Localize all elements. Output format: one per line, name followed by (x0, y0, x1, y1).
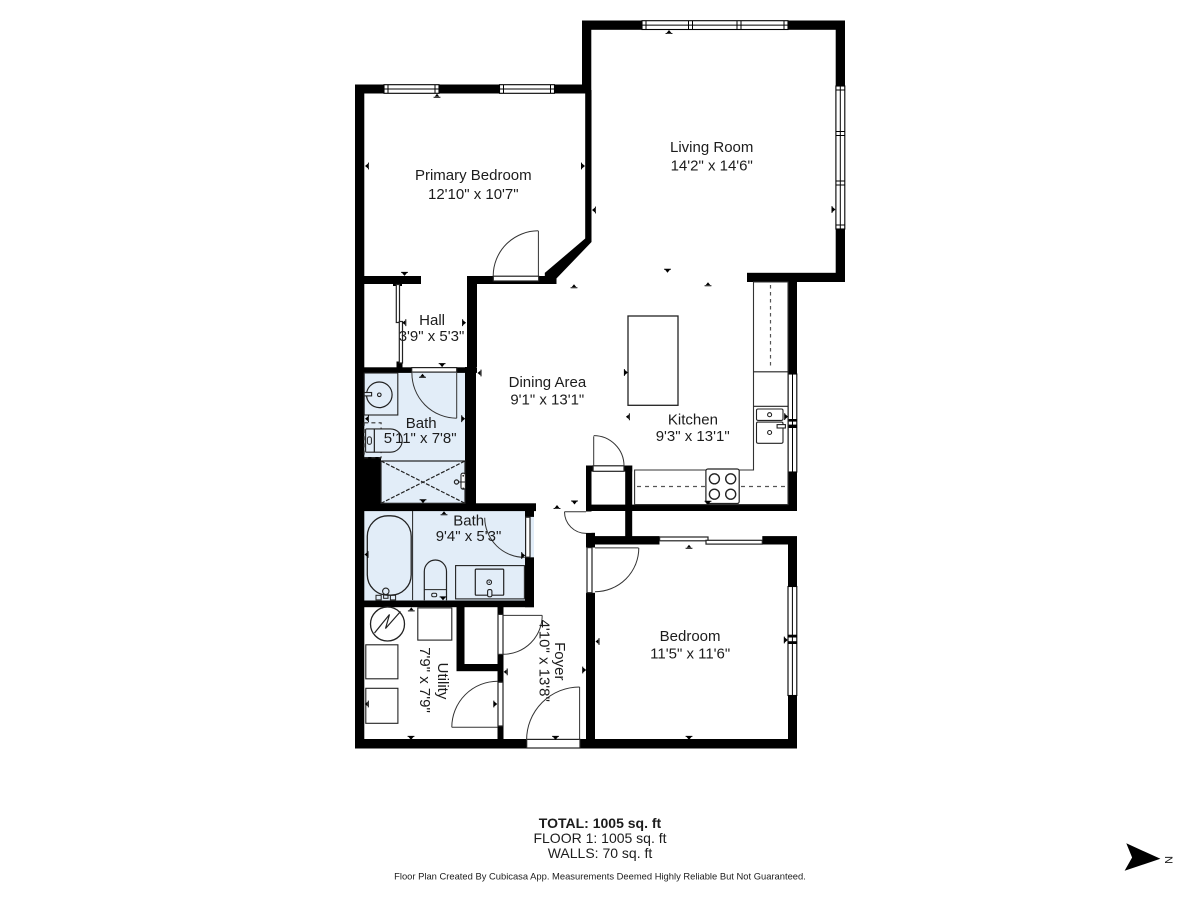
svg-text:N: N (1162, 856, 1174, 864)
svg-text:Kitchen: Kitchen (668, 412, 718, 429)
svg-text:WALLS: 70 sq. ft: WALLS: 70 sq. ft (548, 845, 653, 861)
svg-text:9'1" x 13'1": 9'1" x 13'1" (510, 391, 584, 408)
svg-text:4'10" x 13'8": 4'10" x 13'8" (536, 620, 553, 702)
svg-text:9'4" x 5'3": 9'4" x 5'3" (436, 528, 502, 545)
svg-text:Dining Area: Dining Area (509, 374, 587, 391)
svg-text:Hall: Hall (419, 312, 445, 329)
svg-text:Floor Plan Created By Cubicasa: Floor Plan Created By Cubicasa App. Meas… (394, 871, 806, 882)
svg-text:Utility: Utility (434, 663, 451, 700)
svg-text:5'11" x 7'8": 5'11" x 7'8" (384, 430, 457, 447)
svg-text:7'9" x 7'9": 7'9" x 7'9" (416, 647, 433, 713)
svg-text:14'2" x 14'6": 14'2" x 14'6" (671, 158, 753, 175)
svg-text:12'10" x 10'7": 12'10" x 10'7" (428, 186, 519, 203)
svg-text:FLOOR 1: 1005 sq. ft: FLOOR 1: 1005 sq. ft (533, 830, 666, 846)
svg-text:9'3" x 13'1": 9'3" x 13'1" (656, 428, 730, 445)
svg-text:Living Room: Living Room (670, 139, 753, 156)
svg-text:TOTAL: 1005 sq. ft: TOTAL: 1005 sq. ft (539, 815, 662, 831)
svg-text:Primary Bedroom: Primary Bedroom (415, 167, 532, 184)
svg-text:Bedroom: Bedroom (660, 628, 721, 645)
svg-text:3'9" x 5'3": 3'9" x 5'3" (399, 328, 465, 345)
svg-text:11'5" x 11'6": 11'5" x 11'6" (650, 645, 730, 662)
